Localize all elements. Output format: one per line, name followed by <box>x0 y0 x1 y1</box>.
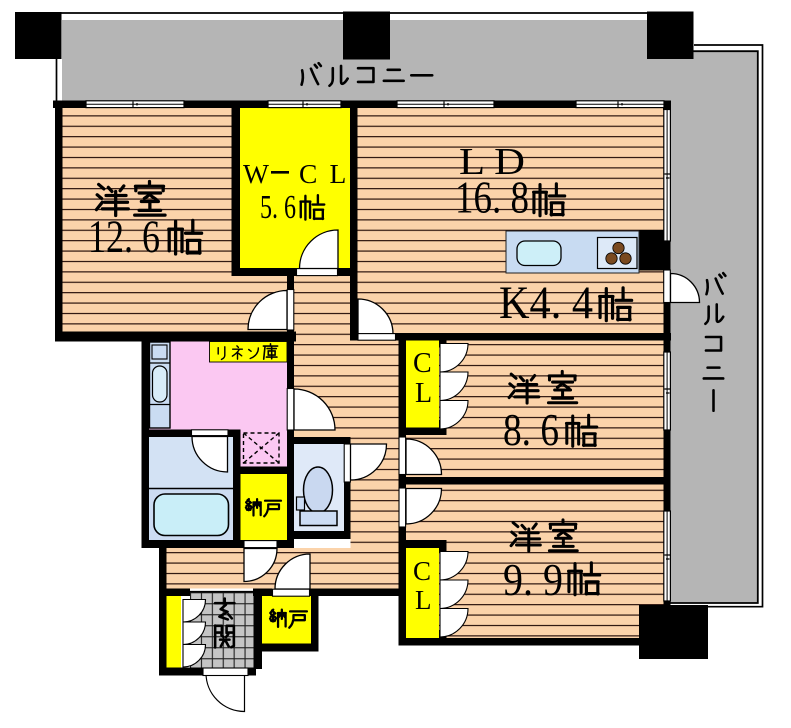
svg-text:C: C <box>413 556 431 586</box>
svg-text:8. 6: 8. 6 <box>503 405 559 455</box>
svg-text:C: C <box>299 158 317 189</box>
svg-text:C: C <box>413 348 432 379</box>
svg-text:9. 9: 9. 9 <box>503 555 563 605</box>
svg-text:12. 6: 12. 6 <box>88 211 160 263</box>
svg-text:L: L <box>330 158 347 189</box>
svg-text:K4. 4: K4. 4 <box>499 277 593 329</box>
svg-text:L: L <box>415 585 432 615</box>
svg-text:W: W <box>243 158 269 189</box>
svg-text:5. 6: 5. 6 <box>260 189 296 226</box>
svg-text:L: L <box>415 378 432 409</box>
svg-text:16. 8: 16. 8 <box>455 173 529 223</box>
